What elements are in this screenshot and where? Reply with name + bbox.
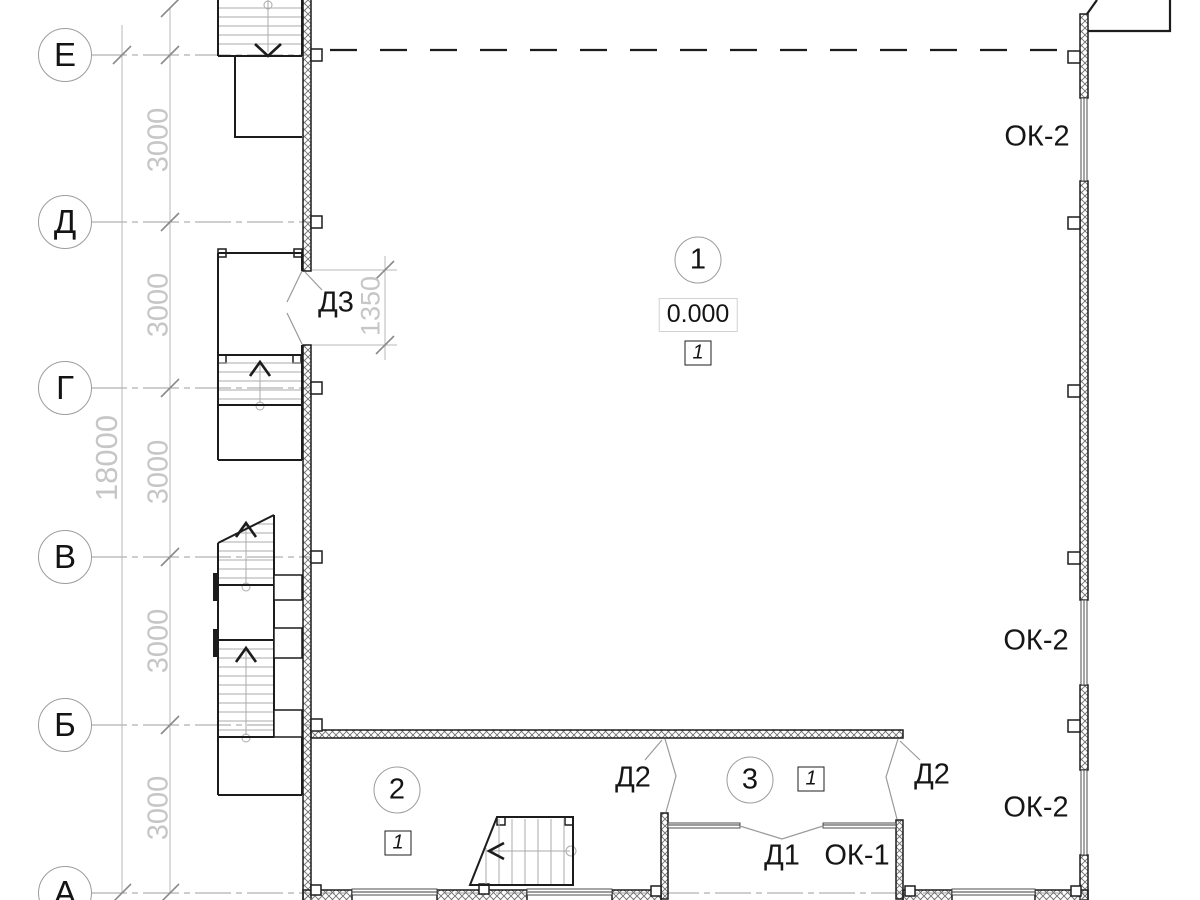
- floor-plan-drawing: Е Д Г В Б А 18000 3000 3000 3000 3000 30…: [0, 0, 1200, 900]
- finish-mark-room-1: 1: [685, 341, 712, 366]
- door-label-d2-right: Д2: [914, 759, 950, 792]
- finish-mark-room-2: 1: [385, 831, 412, 856]
- room-number: 1: [690, 244, 706, 277]
- door-leaf-symbols: [287, 271, 920, 839]
- dim-door-opening-1350: 1350: [356, 276, 387, 336]
- finish-mark-value: 1: [392, 832, 403, 855]
- stair-outlines: [218, 0, 573, 885]
- dim-overall-18000: 18000: [89, 415, 125, 501]
- room-number-bubble-2: 2: [374, 767, 421, 814]
- finish-mark-value: 1: [805, 768, 816, 791]
- top-right-corner: [1087, 0, 1170, 31]
- dim-bay-1: 3000: [143, 108, 176, 173]
- door-label-d2-left: Д2: [615, 762, 651, 795]
- dim-bay-2: 3000: [143, 273, 176, 338]
- dim-bay-4: 3000: [143, 609, 176, 674]
- axis-label: А: [54, 874, 76, 900]
- window-label-ok1: ОК-1: [824, 840, 889, 873]
- room-number-bubble-3: 3: [727, 757, 774, 804]
- axis-bubble-e: Е: [38, 28, 92, 82]
- walls: [303, 0, 1088, 900]
- axis-label: Б: [54, 706, 76, 744]
- finish-mark-value: 1: [692, 342, 703, 365]
- axis-label: В: [54, 538, 76, 576]
- window-symbols: [352, 98, 1087, 895]
- window-label-ok2-middle: ОК-2: [1003, 625, 1068, 658]
- window-label-ok2-top: ОК-2: [1004, 121, 1069, 154]
- dim-bay-3: 3000: [143, 440, 176, 505]
- room-number: 2: [389, 774, 405, 807]
- dim-bay-5: 3000: [143, 776, 176, 841]
- door-label-d3: Д3: [318, 287, 354, 320]
- level-mark: 0.000: [659, 298, 738, 332]
- stair-side-boxes: [274, 575, 302, 737]
- axis-bubble-g: Г: [38, 361, 92, 415]
- axis-bubble-v: В: [38, 530, 92, 584]
- room-number: 3: [742, 764, 758, 797]
- room-number-bubble-1: 1: [675, 237, 722, 284]
- door-label-d1: Д1: [764, 840, 800, 873]
- axis-label: Г: [56, 369, 74, 407]
- axis-bubble-d: Д: [38, 195, 92, 249]
- window-label-ok2-bottom: ОК-2: [1003, 792, 1068, 825]
- finish-mark-room-3: 1: [798, 767, 825, 792]
- stair-treads: [218, 0, 576, 884]
- axis-label: Д: [54, 203, 76, 241]
- axis-label: Е: [54, 36, 76, 74]
- axis-bubble-b: Б: [38, 698, 92, 752]
